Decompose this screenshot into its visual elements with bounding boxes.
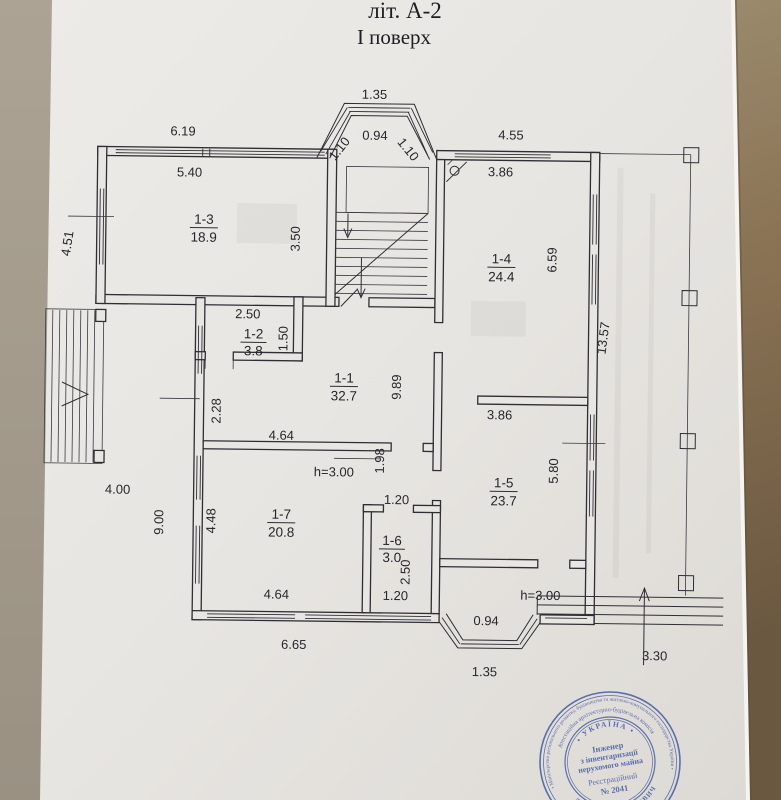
room-1-3-area: 18.9 xyxy=(190,230,216,245)
floor-plan-photo: літ. А-2 І поверх xyxy=(0,0,781,800)
window-line xyxy=(593,194,594,244)
dim-bay-bottom-width: 1.35 xyxy=(472,664,497,679)
dim-top-left-width: 6.19 xyxy=(170,123,195,138)
dim-bottom-left-width: 6.65 xyxy=(281,637,306,652)
ghost-smudge xyxy=(471,301,526,337)
wall xyxy=(440,559,538,568)
dim-room13-height: 3.50 xyxy=(288,226,303,251)
dim-room13-width: 5.40 xyxy=(177,164,202,179)
wall xyxy=(363,505,383,512)
room-1-1-id: 1-1 xyxy=(334,370,354,385)
dim-top-right-width: 4.55 xyxy=(498,127,523,142)
room-1-6-area: 3.0 xyxy=(382,550,401,565)
dim-room14-height: 6.59 xyxy=(544,247,559,272)
dim-room15-width: 3.86 xyxy=(487,407,512,422)
room-1-5-area: 23.7 xyxy=(490,493,516,508)
floor-plan-svg: літ. А-2 І поверх xyxy=(0,0,781,800)
wall xyxy=(431,501,440,614)
window-line xyxy=(197,456,198,500)
plan-title-line1: літ. А-2 xyxy=(368,0,441,23)
dim-bay-top-inner: 0.94 xyxy=(362,128,387,143)
window-line xyxy=(596,195,597,245)
plan-title-line2: І поверх xyxy=(357,25,432,49)
dim-hall-height: 9.89 xyxy=(389,374,404,399)
room-1-2-area: 3.8 xyxy=(244,343,263,358)
label-ceiling-height-room17: h=3.00 xyxy=(314,464,354,479)
window-line xyxy=(545,618,587,619)
dim-hall-lower-right: 1.98 xyxy=(372,448,387,473)
window-line xyxy=(200,456,201,500)
room-1-7-area: 20.8 xyxy=(268,525,294,540)
room-1-4-area: 24.4 xyxy=(488,269,515,284)
wall xyxy=(570,560,586,568)
wall xyxy=(423,443,433,451)
dim-porch-width: 4.00 xyxy=(105,482,130,497)
room-1-2-id: 1-2 xyxy=(244,326,264,341)
dim-room15-height: 5.80 xyxy=(546,458,561,483)
window-line xyxy=(198,326,199,374)
dim-bay-bottom-inner: 0.94 xyxy=(473,613,498,628)
dim-room12-height: 1.50 xyxy=(275,326,290,351)
pillar xyxy=(94,450,104,462)
wall xyxy=(293,297,303,361)
window-line xyxy=(594,414,595,460)
dim-bay-top-width: 1.35 xyxy=(362,87,387,102)
window-line xyxy=(202,326,203,374)
room-1-3-id: 1-3 xyxy=(194,212,214,227)
window-line xyxy=(593,470,594,516)
dim-room14-width: 3.86 xyxy=(488,164,513,179)
window-line xyxy=(592,254,593,304)
room-1-4-id: 1-4 xyxy=(492,251,512,266)
dim-wall-segment-left: 2.28 xyxy=(208,398,223,423)
wall xyxy=(369,298,435,308)
wall xyxy=(326,149,337,306)
dim-room17-top-width: 4.64 xyxy=(269,428,294,443)
wall xyxy=(433,353,442,471)
room-1-5-id: 1-5 xyxy=(494,475,514,490)
dim-room17-bottom-width: 4.64 xyxy=(264,586,289,601)
wall xyxy=(195,352,205,360)
dim-room16-bottom-width: 1.20 xyxy=(383,588,408,603)
room-1-6-id: 1-6 xyxy=(382,533,402,548)
wall xyxy=(435,160,445,323)
label-ceiling-height-right: h=3.00 xyxy=(520,588,560,603)
dim-room17-height: 4.48 xyxy=(203,508,218,533)
wall xyxy=(540,615,594,625)
window-line xyxy=(595,255,596,305)
pillar xyxy=(96,309,106,321)
wall xyxy=(362,505,371,613)
wall xyxy=(203,441,391,451)
room-1-1-area: 32.7 xyxy=(331,388,357,403)
window-line xyxy=(590,414,591,460)
dim-left-lower-height: 9.00 xyxy=(151,509,166,534)
dim-room16-top-width: 1.20 xyxy=(384,492,409,507)
window-line xyxy=(589,470,590,516)
wall xyxy=(96,146,107,303)
room-1-7-id: 1-7 xyxy=(272,507,292,522)
wall xyxy=(413,505,440,512)
wall xyxy=(478,396,588,405)
dim-entrance-steps-width: 3.30 xyxy=(642,648,667,663)
wall xyxy=(437,151,600,162)
dim-room12-width: 2.50 xyxy=(235,306,260,321)
